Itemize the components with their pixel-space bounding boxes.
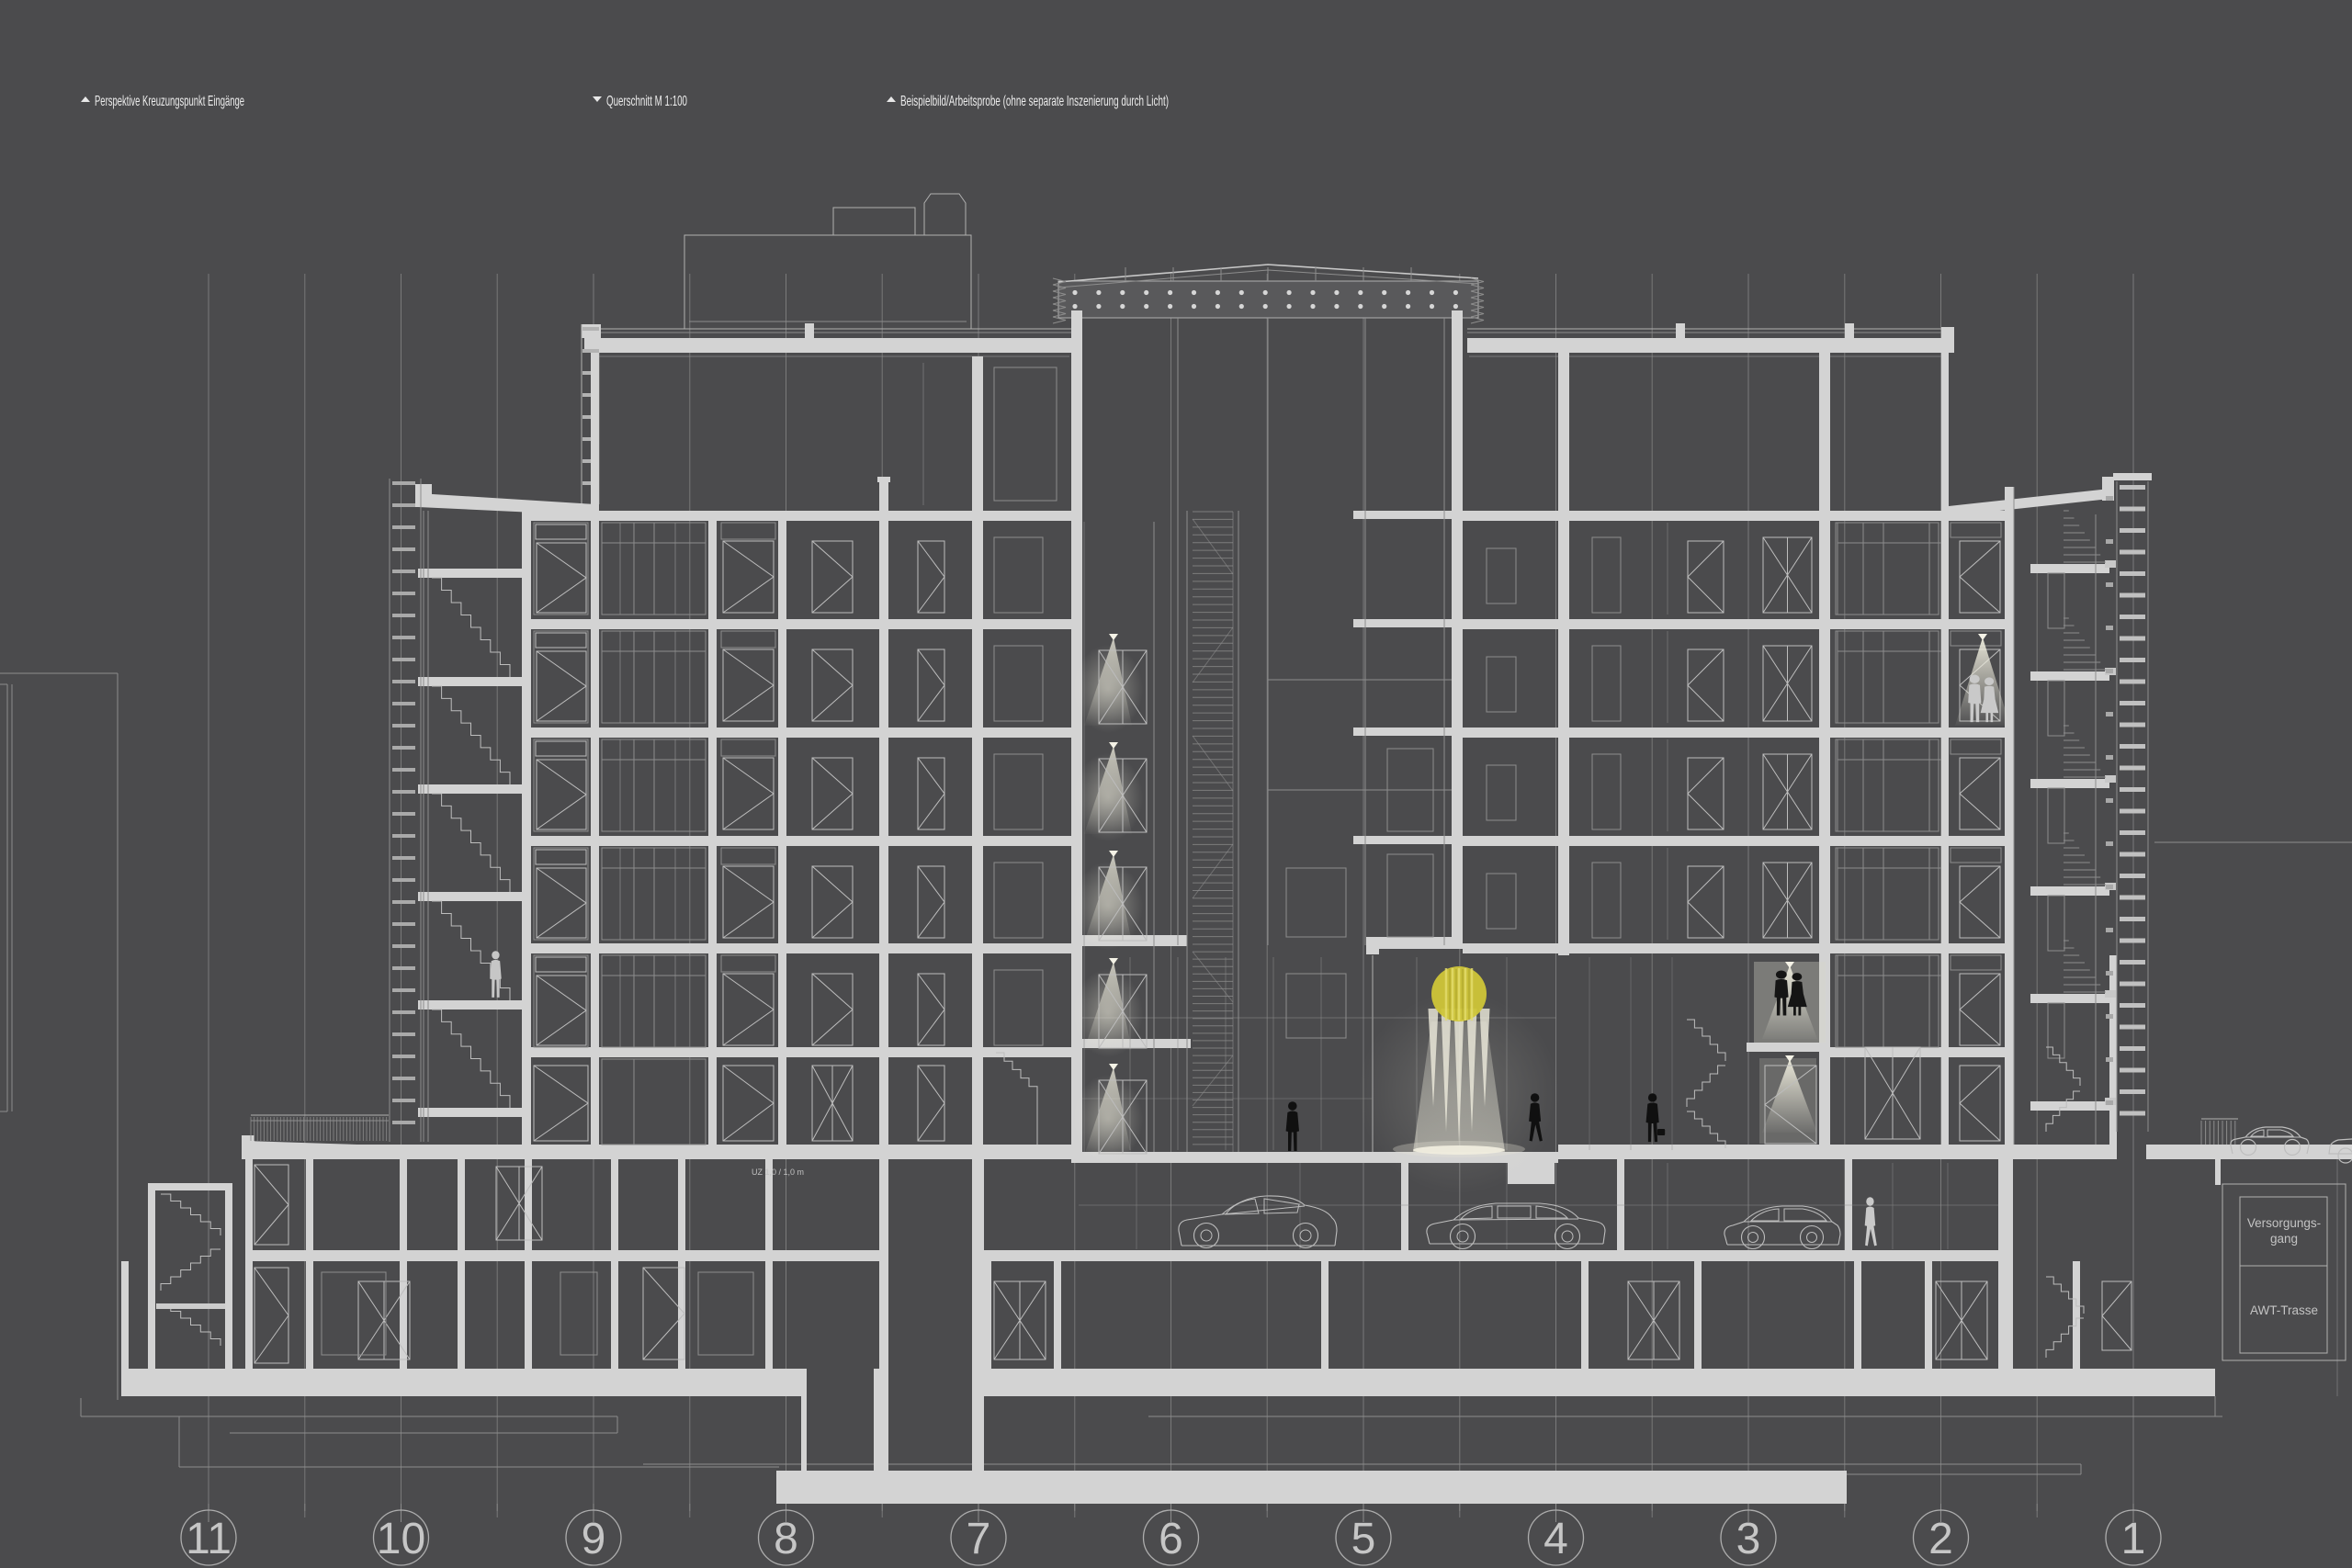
svg-text:7: 7 bbox=[967, 1515, 991, 1563]
svg-text:2: 2 bbox=[1928, 1515, 1953, 1563]
svg-text:5: 5 bbox=[1351, 1515, 1376, 1563]
svg-text:AWT-Trasse: AWT-Trasse bbox=[2250, 1303, 2318, 1317]
svg-text:Perspektive Kreuzungspunkt Ein: Perspektive Kreuzungspunkt Eingänge bbox=[95, 94, 244, 109]
svg-text:UZ 1,0 / 1,0 m: UZ 1,0 / 1,0 m bbox=[752, 1168, 804, 1177]
svg-text:3: 3 bbox=[1736, 1515, 1761, 1563]
svg-text:Versorgungs-: Versorgungs- bbox=[2247, 1216, 2321, 1230]
svg-text:8: 8 bbox=[774, 1515, 798, 1563]
svg-text:6: 6 bbox=[1159, 1515, 1183, 1563]
svg-text:4: 4 bbox=[1543, 1515, 1568, 1563]
svg-text:11: 11 bbox=[186, 1515, 232, 1563]
svg-text:10: 10 bbox=[377, 1515, 425, 1563]
svg-text:9: 9 bbox=[582, 1515, 606, 1563]
svg-text:gang: gang bbox=[2270, 1232, 2298, 1246]
svg-text:1: 1 bbox=[2121, 1515, 2146, 1563]
svg-text:Beispielbild/Arbeitsprobe (ohn: Beispielbild/Arbeitsprobe (ohne separate… bbox=[900, 94, 1169, 109]
svg-text:Querschnitt M 1:100: Querschnitt M 1:100 bbox=[606, 94, 687, 109]
